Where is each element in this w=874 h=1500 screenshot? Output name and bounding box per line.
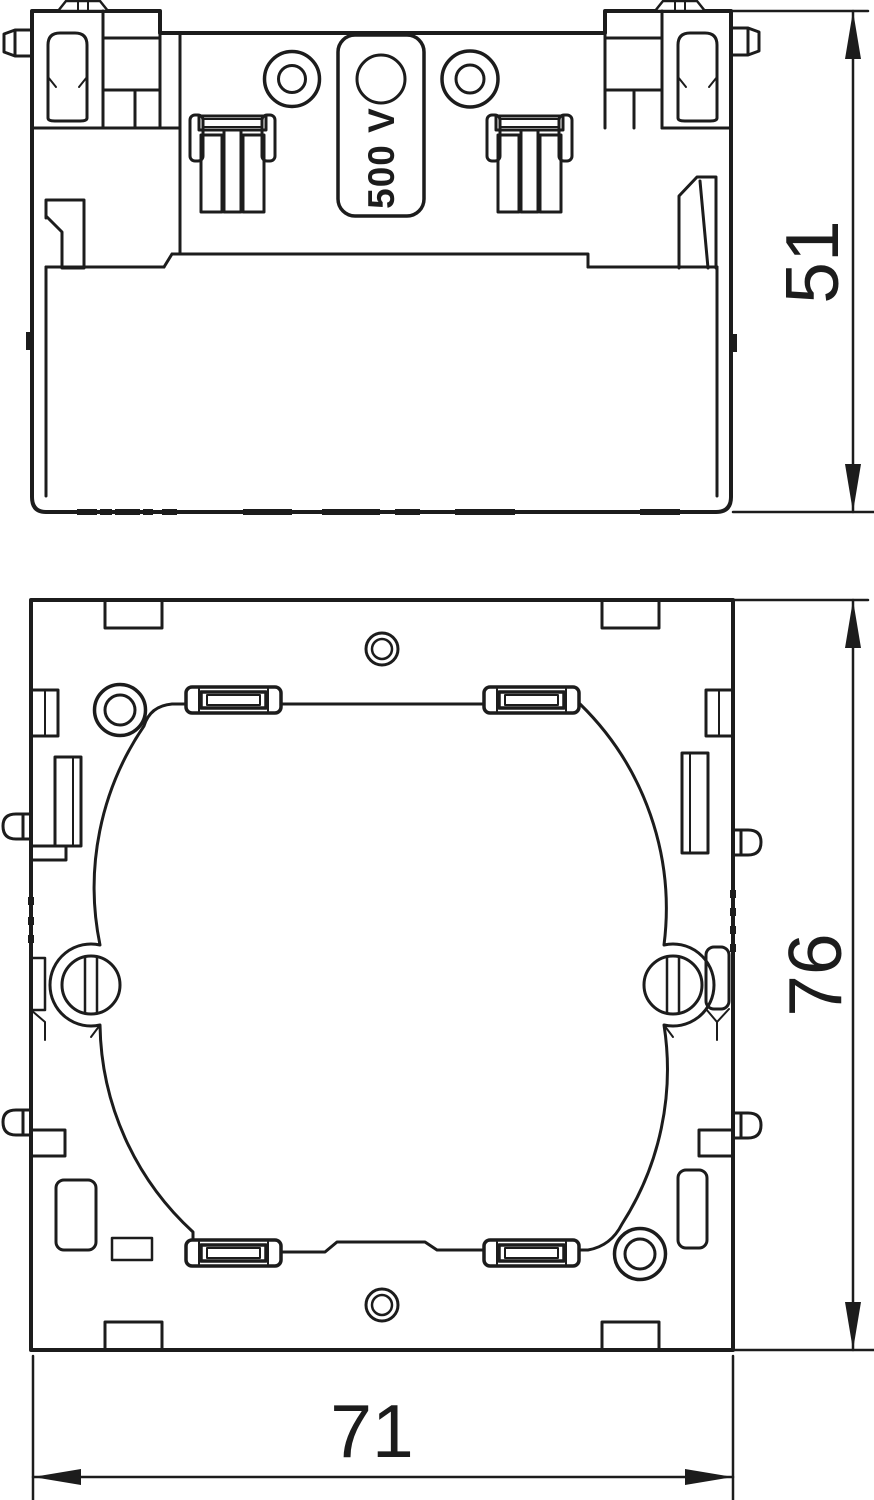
central-opening xyxy=(50,704,714,1252)
dimension-71: 71 xyxy=(33,1356,733,1500)
side-pin-left xyxy=(4,30,32,56)
centre-hole-top-icon xyxy=(366,633,398,665)
centre-hole-bottom-icon xyxy=(366,1289,398,1321)
hook-left xyxy=(46,200,84,268)
slotted-screw-right-icon xyxy=(644,956,702,1014)
dimension-51: 51 xyxy=(733,11,874,512)
voltage-label: 500 V xyxy=(361,107,402,209)
screw-hole-top-left-icon xyxy=(95,685,146,736)
slotted-screw-left-icon xyxy=(62,956,120,1014)
arrow-left-icon xyxy=(33,1469,81,1485)
left-bracket xyxy=(32,11,180,128)
clip-top-right xyxy=(484,687,579,713)
dimension-51-label: 51 xyxy=(770,220,854,303)
clip-top-left xyxy=(186,687,281,713)
screw-hole-bottom-right-icon xyxy=(615,1229,666,1280)
top-screw-left-icon xyxy=(58,1,108,11)
claw-right xyxy=(487,115,572,212)
dimension-71-label: 71 xyxy=(330,1389,413,1473)
claw-left xyxy=(190,115,275,212)
right-bracket xyxy=(605,11,731,128)
notch-top-right xyxy=(602,600,659,628)
hook-right xyxy=(679,177,716,268)
technical-drawing: 500 V 51 xyxy=(0,0,874,1500)
side-pin-right xyxy=(731,28,759,55)
clip-bottom-left xyxy=(186,1240,281,1266)
notch-bottom-left xyxy=(105,1322,162,1350)
arrow-up-icon xyxy=(845,11,861,59)
dimension-76: 76 xyxy=(733,600,874,1350)
front-view xyxy=(3,600,761,1350)
face-hole-left-outer xyxy=(265,52,320,107)
arrow-up-icon xyxy=(845,600,861,648)
side-view: 500 V xyxy=(4,1,759,515)
notch-top-left xyxy=(105,600,162,628)
voltage-tag: 500 V xyxy=(338,35,424,216)
edge-tick-right xyxy=(729,334,737,352)
notch-bottom-right xyxy=(602,1322,659,1350)
edge-tick-left xyxy=(26,332,34,350)
drawing-canvas: 500 V 51 xyxy=(0,0,874,1500)
clip-bottom-right xyxy=(484,1240,579,1266)
arrow-right-icon xyxy=(685,1469,733,1485)
face-hole-right-outer xyxy=(442,51,498,107)
top-screw-right-icon xyxy=(655,1,705,11)
dimension-76-label: 76 xyxy=(773,933,857,1016)
arrow-down-icon xyxy=(845,1302,861,1350)
arrow-down-icon xyxy=(845,464,861,512)
